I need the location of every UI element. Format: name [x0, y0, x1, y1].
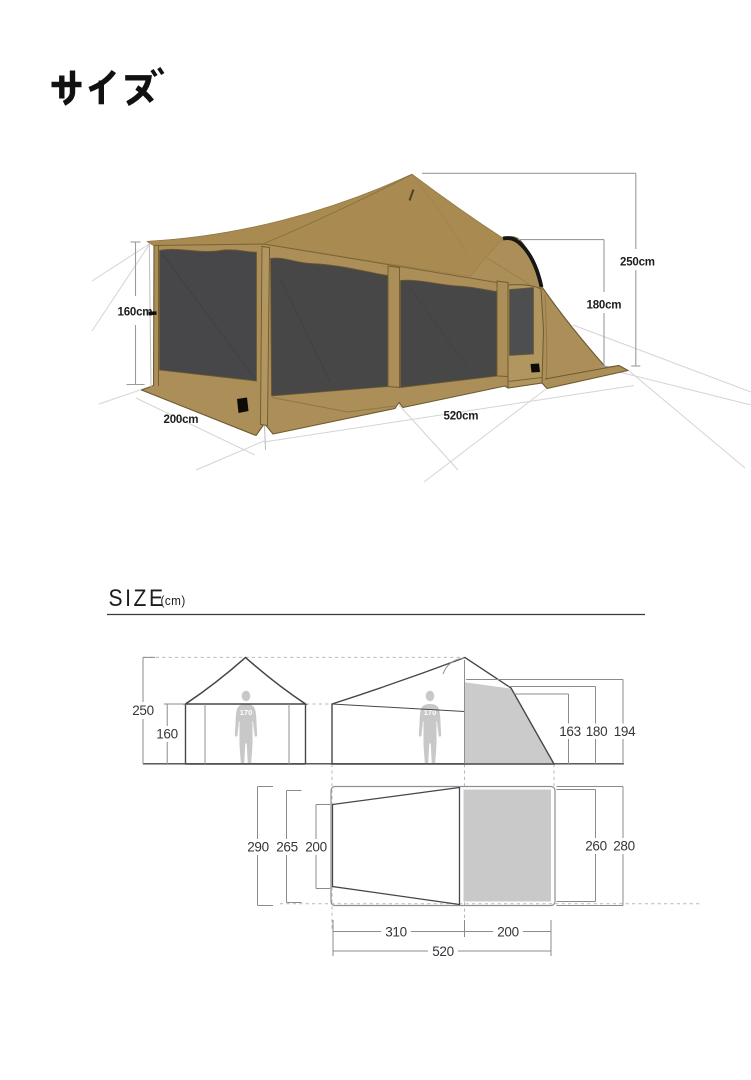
svg-text:290: 290: [247, 840, 269, 855]
svg-text:160cm: 160cm: [118, 306, 153, 318]
svg-text:163: 163: [559, 724, 581, 739]
svg-text:170: 170: [240, 708, 253, 717]
svg-text:200: 200: [497, 925, 519, 940]
svg-text:250: 250: [132, 703, 154, 718]
svg-text:265: 265: [276, 840, 298, 855]
svg-text:180cm: 180cm: [587, 300, 622, 312]
svg-text:160: 160: [156, 727, 178, 742]
svg-text:180: 180: [586, 724, 608, 739]
svg-text:200cm: 200cm: [164, 414, 199, 426]
svg-text:194: 194: [614, 724, 636, 739]
svg-text:200: 200: [305, 840, 327, 855]
svg-text:250cm: 250cm: [620, 257, 655, 269]
svg-text:310: 310: [385, 925, 407, 940]
svg-text:(cm): (cm): [161, 593, 186, 608]
svg-text:SIZE: SIZE: [109, 583, 166, 611]
svg-text:260: 260: [585, 839, 607, 854]
svg-text:280: 280: [613, 839, 635, 854]
svg-text:520cm: 520cm: [444, 411, 479, 423]
svg-text:520: 520: [432, 944, 454, 959]
